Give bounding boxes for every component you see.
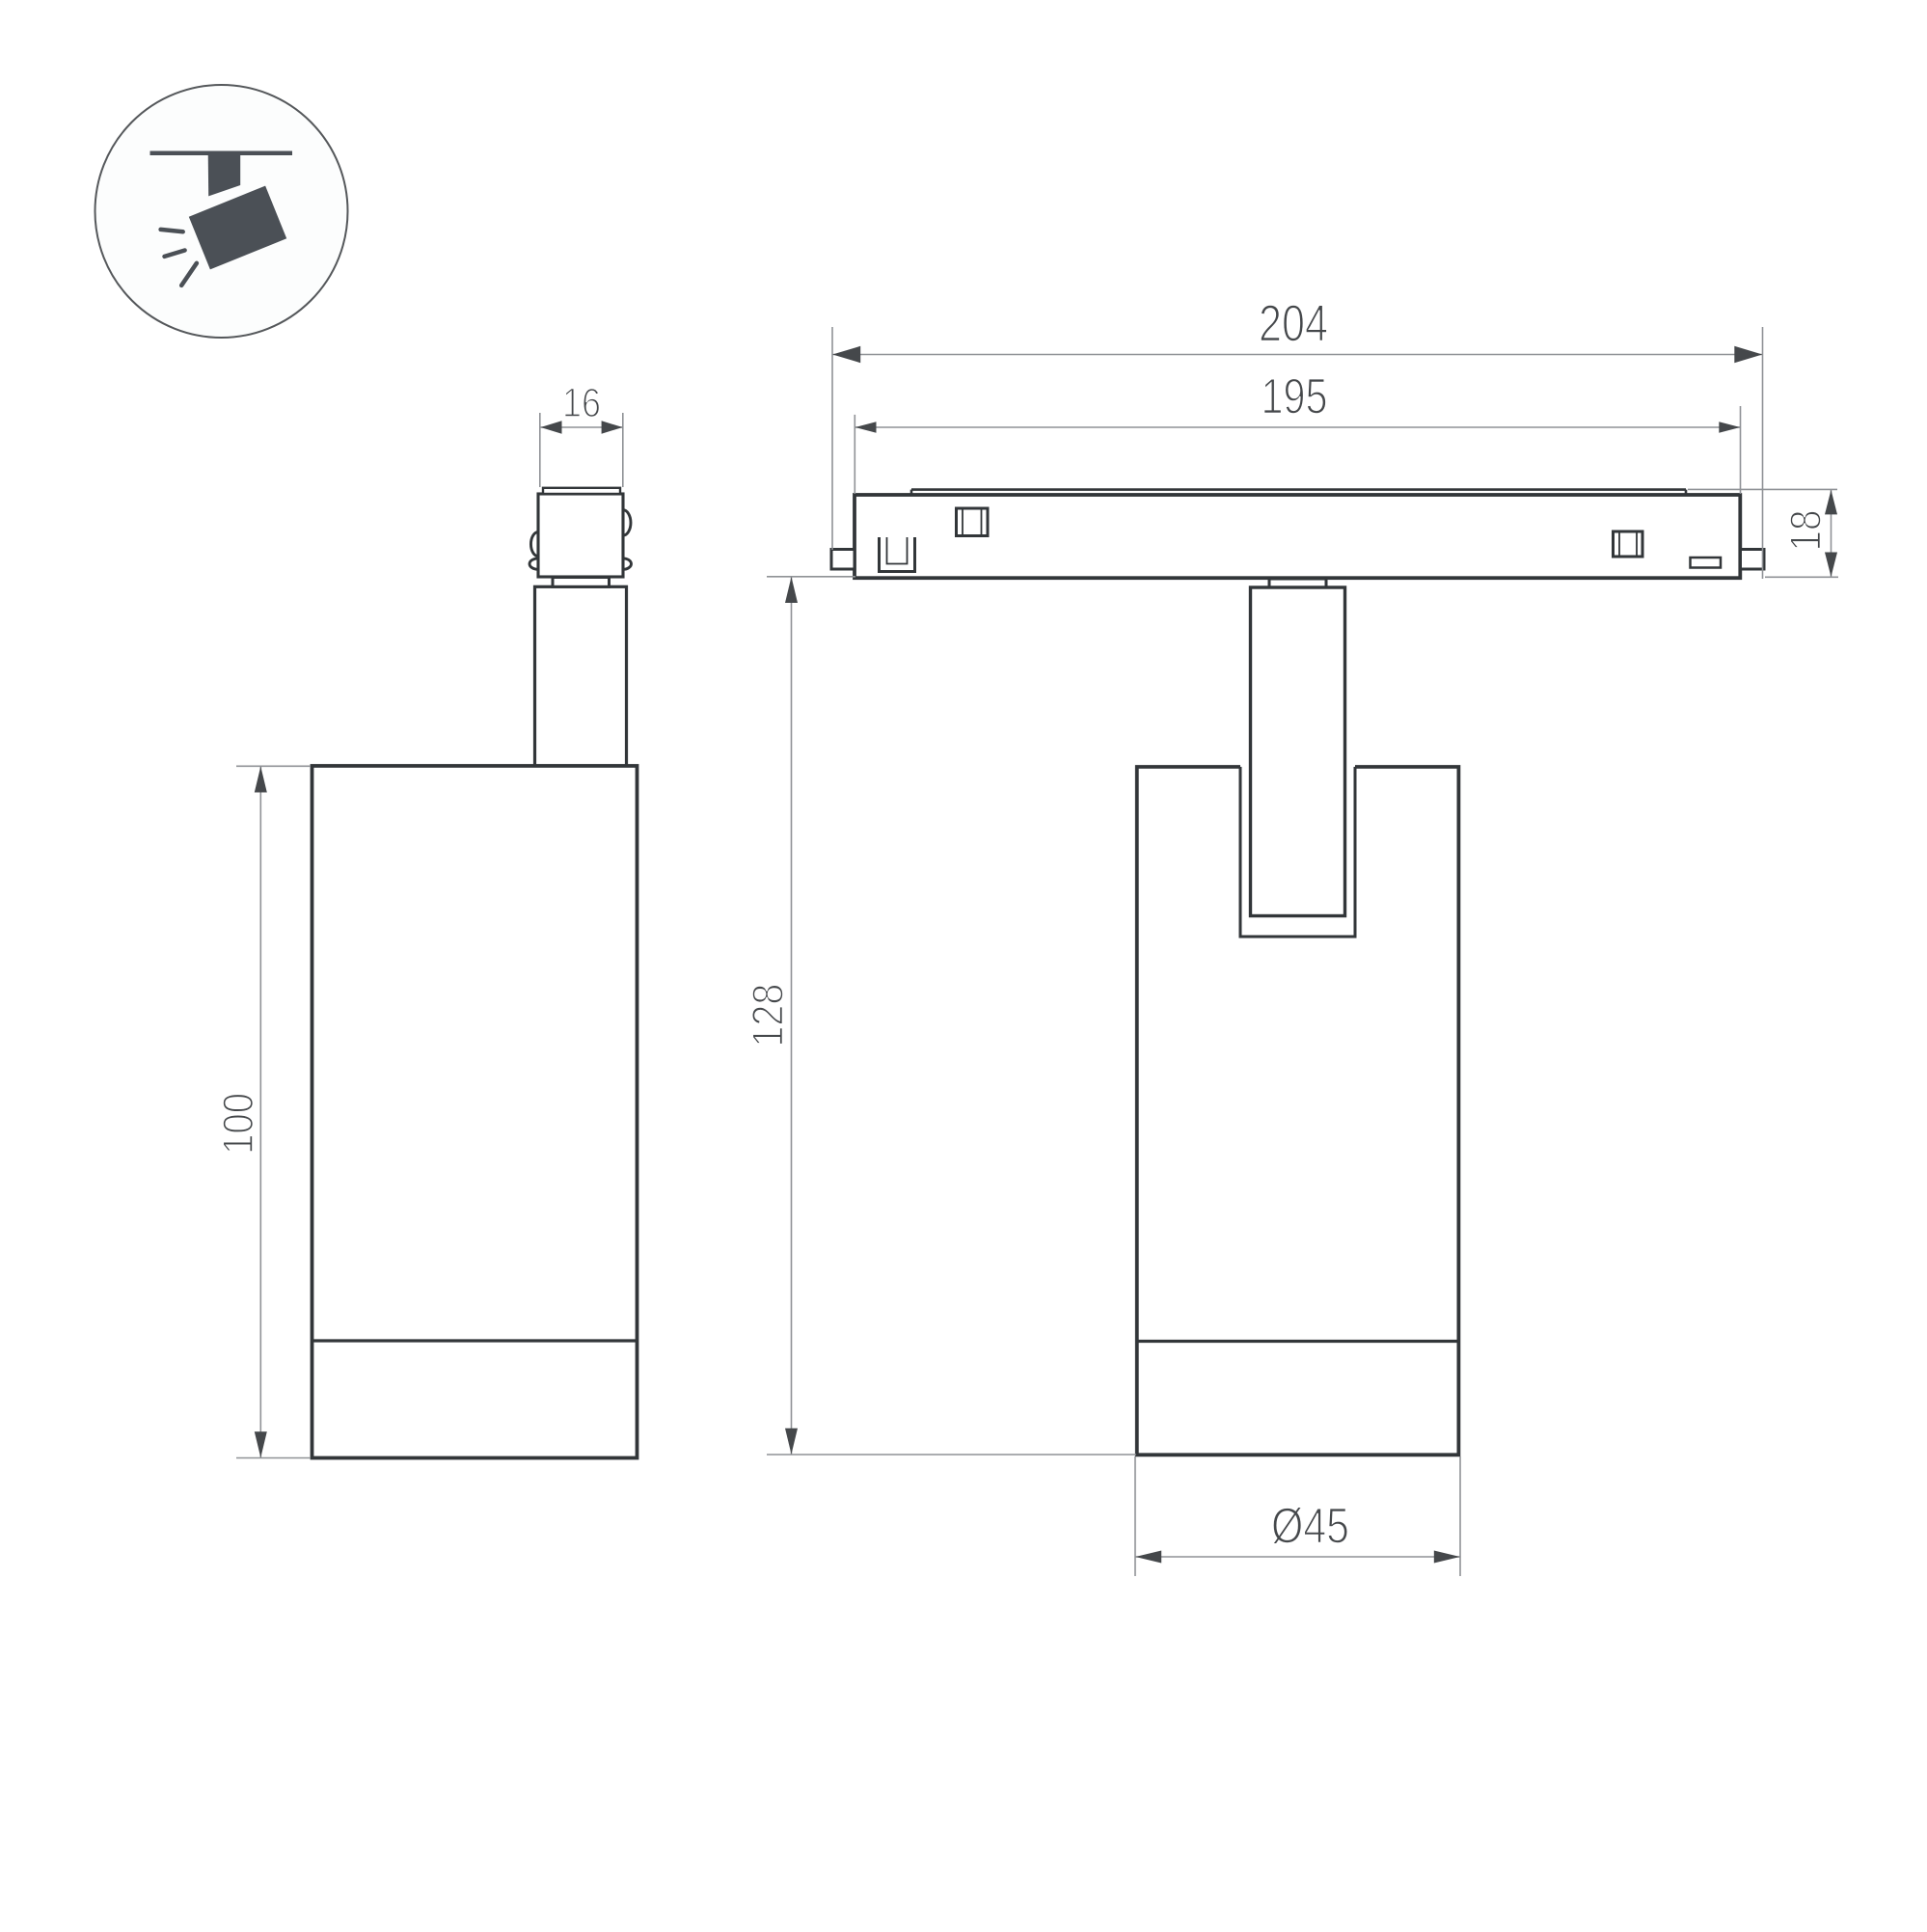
svg-text:Ø45: Ø45 bbox=[1271, 1499, 1349, 1555]
svg-text:100: 100 bbox=[215, 1093, 262, 1155]
svg-text:18: 18 bbox=[1780, 510, 1830, 552]
svg-text:128: 128 bbox=[744, 984, 793, 1048]
svg-text:195: 195 bbox=[1262, 369, 1328, 425]
svg-text:204: 204 bbox=[1259, 296, 1328, 353]
svg-text:16: 16 bbox=[562, 380, 601, 426]
